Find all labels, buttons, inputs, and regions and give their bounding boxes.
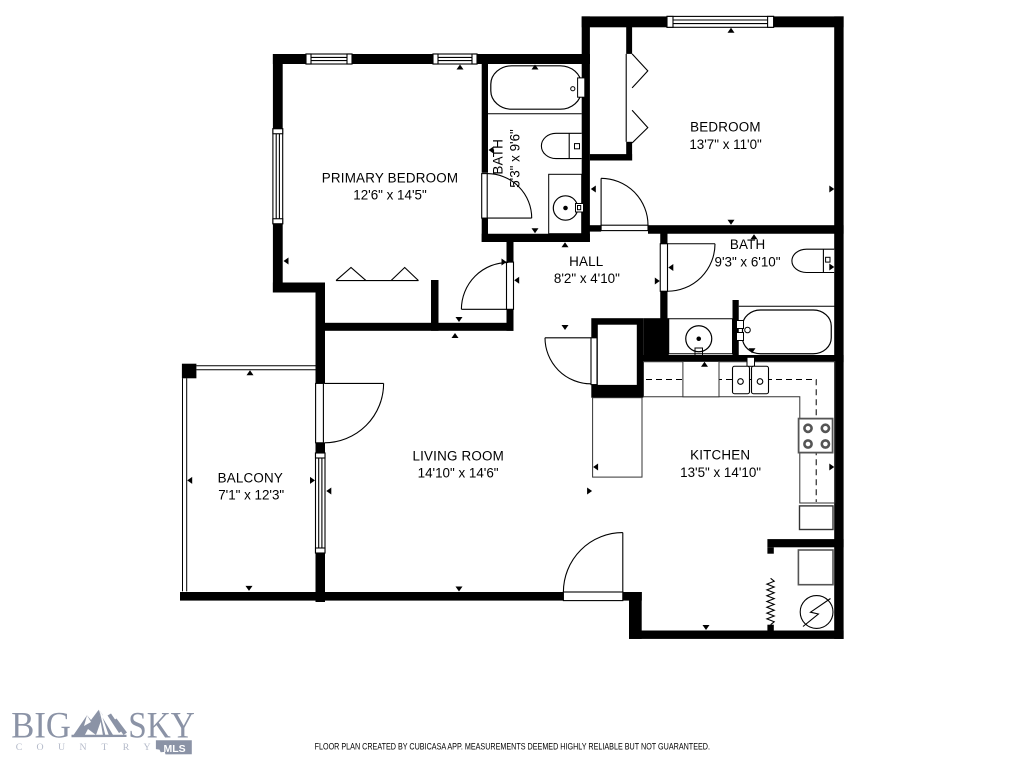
svg-text:R: R <box>123 742 130 753</box>
svg-text:BIG: BIG <box>11 705 71 746</box>
svg-text:KITCHEN: KITCHEN <box>690 448 750 463</box>
svg-text:14'10" x 14'6": 14'10" x 14'6" <box>418 466 499 481</box>
svg-text:N: N <box>79 742 86 753</box>
svg-text:BATH: BATH <box>730 237 766 252</box>
svg-text:13'7" x 11'0": 13'7" x 11'0" <box>689 137 762 152</box>
svg-text:8'2" x 4'10": 8'2" x 4'10" <box>554 271 620 286</box>
svg-text:SKY: SKY <box>128 705 195 746</box>
svg-text:HALL: HALL <box>569 254 603 269</box>
svg-text:LIVING ROOM: LIVING ROOM <box>412 448 503 463</box>
svg-text:13'5" x 14'10": 13'5" x 14'10" <box>680 465 761 480</box>
svg-text:C: C <box>16 742 23 753</box>
svg-text:MLS: MLS <box>164 743 186 755</box>
svg-text:BEDROOM: BEDROOM <box>690 120 761 135</box>
svg-text:O: O <box>36 742 43 753</box>
svg-text:U: U <box>58 742 65 753</box>
svg-text:T: T <box>102 742 108 753</box>
svg-text:Y: Y <box>143 742 150 753</box>
svg-text:12'6" x 14'5": 12'6" x 14'5" <box>353 187 427 202</box>
svg-text:BATH: BATH <box>490 139 505 175</box>
svg-text:9'3" x 6'10": 9'3" x 6'10" <box>715 254 781 269</box>
svg-text:BALCONY: BALCONY <box>218 470 283 485</box>
svg-text:PRIMARY BEDROOM: PRIMARY BEDROOM <box>322 170 458 185</box>
svg-text:5'3" x 9'6": 5'3" x 9'6" <box>507 129 522 188</box>
svg-text:FLOOR PLAN CREATED BY CUBICASA: FLOOR PLAN CREATED BY CUBICASA APP. MEAS… <box>315 742 710 752</box>
svg-text:7'1" x 12'3": 7'1" x 12'3" <box>218 488 284 503</box>
